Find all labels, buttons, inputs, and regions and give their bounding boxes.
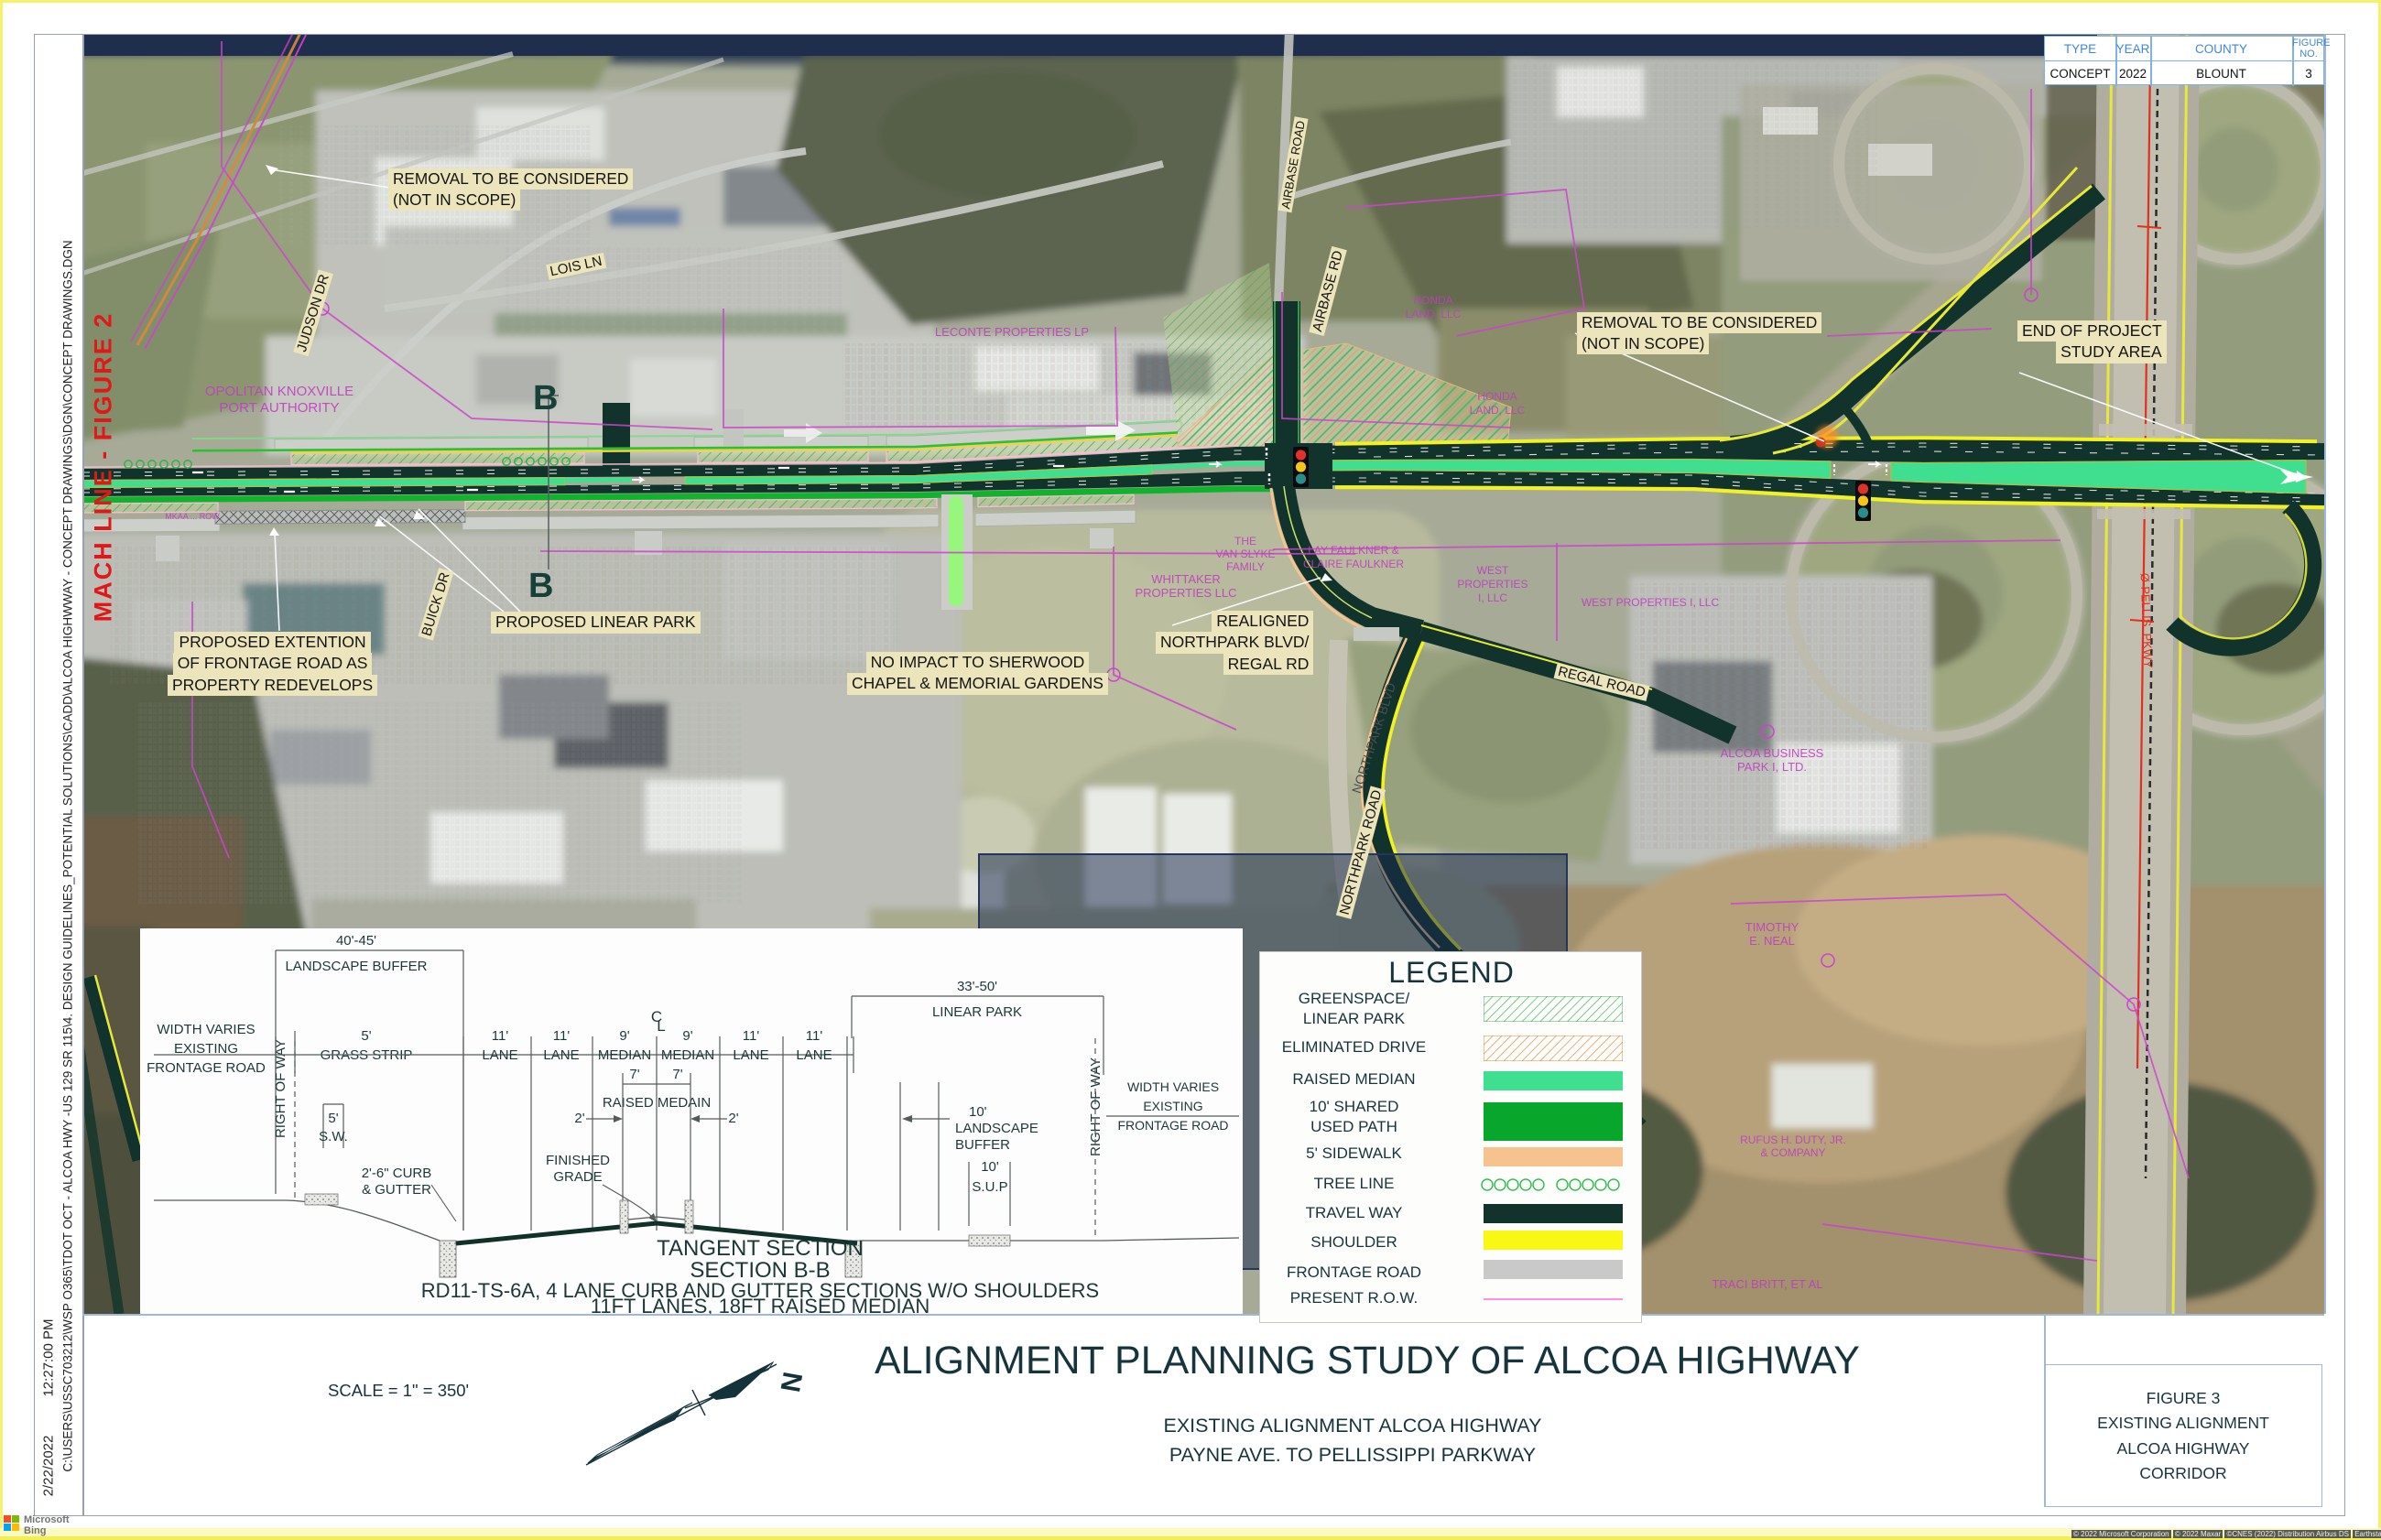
- svg-text:WIDTH VARIES: WIDTH VARIES: [157, 1022, 255, 1037]
- svg-text:9': 9': [619, 1028, 629, 1044]
- svg-text:TANGENT SECTION: TANGENT SECTION: [657, 1236, 864, 1261]
- svg-text:LANDSCAPE BUFFER: LANDSCAPE BUFFER: [285, 959, 427, 974]
- svg-text:33'-50': 33'-50': [957, 979, 997, 994]
- svg-text:LINEAR PARK: LINEAR PARK: [932, 1004, 1022, 1020]
- svg-text:RAISED MEDAIN: RAISED MEDAIN: [603, 1095, 711, 1111]
- svg-text:40'-45': 40'-45': [336, 933, 376, 949]
- svg-text:7': 7': [672, 1067, 682, 1082]
- svg-text:10': 10': [981, 1159, 999, 1175]
- svg-text:L: L: [657, 1017, 665, 1035]
- svg-text:11': 11': [806, 1028, 823, 1044]
- svg-text:11': 11': [492, 1028, 509, 1044]
- svg-text:LANE: LANE: [482, 1047, 517, 1063]
- svg-text:S.U.P: S.U.P: [972, 1179, 1007, 1195]
- svg-text:BUFFER: BUFFER: [955, 1137, 1010, 1153]
- svg-text:WIDTH VARIES: WIDTH VARIES: [1127, 1079, 1219, 1094]
- svg-text:Microsoft: Microsoft: [24, 1514, 70, 1525]
- svg-text:11': 11': [743, 1028, 760, 1044]
- svg-text:GRADE: GRADE: [553, 1169, 602, 1185]
- svg-text:LANE: LANE: [543, 1047, 579, 1063]
- svg-text:11FT LANES, 18FT RAISED MEDIAN: 11FT LANES, 18FT RAISED MEDIAN: [591, 1295, 930, 1314]
- svg-text:MEDIAN: MEDIAN: [661, 1047, 714, 1063]
- svg-text:10': 10': [969, 1104, 987, 1120]
- svg-text:7': 7': [629, 1067, 639, 1082]
- svg-text:FRONTAGE ROAD: FRONTAGE ROAD: [1117, 1118, 1228, 1133]
- svg-text:5': 5': [361, 1028, 371, 1044]
- svg-text:FINISHED: FINISHED: [546, 1153, 610, 1168]
- svg-text:LANE: LANE: [733, 1047, 768, 1063]
- svg-text:MEDIAN: MEDIAN: [598, 1047, 651, 1063]
- svg-text:Bing: Bing: [24, 1525, 46, 1536]
- svg-text:LANDSCAPE: LANDSCAPE: [955, 1121, 1038, 1136]
- svg-text:11': 11': [553, 1028, 571, 1044]
- svg-text:FRONTAGE ROAD: FRONTAGE ROAD: [147, 1060, 266, 1076]
- svg-text:2'-6" CURB: 2'-6" CURB: [362, 1166, 432, 1181]
- svg-text:EXISTING: EXISTING: [1143, 1099, 1202, 1113]
- svg-text:2': 2': [728, 1111, 738, 1126]
- svg-text:2': 2': [574, 1111, 584, 1126]
- svg-text:N: N: [774, 1370, 807, 1394]
- svg-text:& GUTTER: & GUTTER: [362, 1182, 431, 1198]
- svg-text:LANE: LANE: [796, 1047, 832, 1063]
- svg-text:9': 9': [682, 1028, 692, 1044]
- svg-text:S.W.: S.W.: [319, 1129, 348, 1144]
- svg-text:5': 5': [328, 1111, 338, 1126]
